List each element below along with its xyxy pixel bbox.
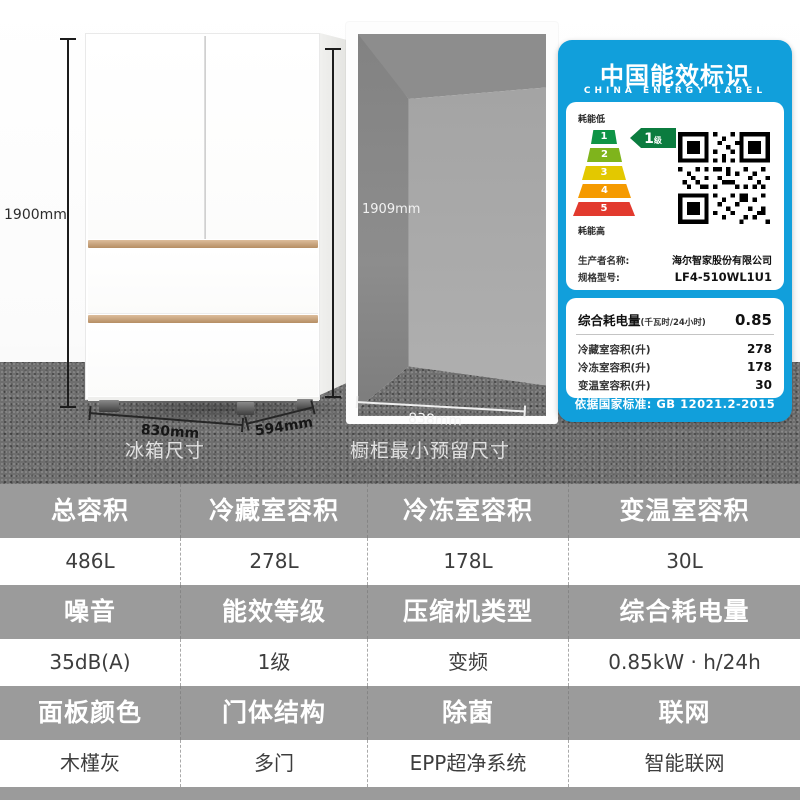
producer-row: 生产者名称: 海尔智家股份有限公司 (578, 252, 772, 267)
energy-tier-1: 1 (591, 130, 617, 144)
spec-value: 278L (181, 538, 368, 585)
spec-value: 0.85kW · h/24h (569, 639, 800, 686)
row-value: 278 (747, 342, 772, 356)
producer-value: 海尔智家股份有限公司 (672, 252, 772, 267)
spec-header: 冷冻室容积 (368, 484, 569, 538)
spec-header-row: 面板颜色 门体结构 除菌 联网 (0, 686, 800, 740)
model-row: 规格型号: LF4-510WL1U1 (578, 270, 772, 284)
spec-value: EPP超净系统 (368, 740, 569, 787)
product-scene: 1900mm 830mm 594mm 冰箱尺寸 1909mm 838mm 橱柜最… (0, 0, 800, 484)
fridge-middle-drawer (88, 249, 318, 314)
variable-temp-volume-row: 变温室容积(升) 30 (578, 378, 772, 393)
consumption-label: 综合耗电量(千瓦时/24小时) (578, 310, 706, 329)
spec-value-row: 486L 278L 178L 30L (0, 538, 800, 585)
grade-number: 1 (644, 131, 654, 147)
consumption-value: 0.85 (735, 311, 772, 329)
row-value: 178 (747, 360, 772, 374)
fridge-height-value: 1900mm (4, 207, 62, 223)
energy-grade-badge: 1级 (630, 128, 676, 148)
cabinet-niche-interior (358, 34, 546, 416)
fridge-handle-trim-bottom (88, 315, 318, 323)
grade-unit: 级 (654, 136, 662, 145)
producer-label: 生产者名称: (578, 253, 629, 267)
spec-value: 木槿灰 (0, 740, 181, 787)
spec-value: 1级 (181, 639, 368, 686)
spec-value: 变频 (368, 639, 569, 686)
spec-header: 变温室容积 (569, 484, 800, 538)
spec-header-row: 噪音 能效等级 压缩机类型 综合耗电量 (0, 585, 800, 639)
fridge-base-strip (88, 397, 319, 401)
product-spec-page: 1900mm 830mm 594mm 冰箱尺寸 1909mm 838mm 橱柜最… (0, 0, 800, 800)
cabinet-dimensions-caption: 橱柜最小预留尺寸 (315, 436, 545, 463)
model-label: 规格型号: (578, 270, 620, 284)
spec-table: 总容积 冷藏室容积 冷冻室容积 变温室容积 486L 278L 178L 30L… (0, 484, 800, 800)
energy-tier-5: 5 (573, 202, 635, 216)
spec-value: 486L (0, 538, 181, 585)
fridge-bottom-drawer (88, 324, 318, 396)
fridge-height-dimension-line (67, 38, 69, 408)
spec-header: 冷藏室容积 (181, 484, 368, 538)
fridge-side-panel (320, 33, 348, 395)
energy-tier-4: 4 (578, 184, 631, 198)
refrigerator-illustration (85, 33, 348, 414)
fridge-handle-trim-top (88, 240, 318, 248)
model-value: LF4-510WL1U1 (675, 270, 772, 284)
low-energy-text: 耗能低 (578, 112, 605, 125)
spec-value: 多门 (181, 740, 368, 787)
spec-value-row: 木槿灰 多门 EPP超净系统 智能联网 (0, 740, 800, 787)
energy-tier-2: 2 (587, 148, 622, 162)
energy-label-standard: 依据国家标准: GB 12021.2-2015 (558, 396, 792, 412)
cabinet-niche-illustration (346, 22, 558, 424)
spec-header: 面板颜色 (0, 686, 181, 740)
fridge-front-panel (85, 33, 320, 400)
consumption-row: 综合耗电量(千瓦时/24小时) 0.85 (578, 310, 772, 329)
spec-value: 35dB(A) (0, 639, 181, 686)
china-energy-label: 中国能效标识 CHINA ENERGY LABEL 耗能低 1 2 3 4 5 … (558, 40, 792, 422)
spec-header: 总容积 (0, 484, 181, 538)
cabinet-height-dimension-line (332, 48, 334, 398)
spec-header: 噪音 (0, 585, 181, 639)
row-value: 30 (755, 378, 772, 392)
spec-table-footer-strip (0, 787, 800, 800)
spec-value-row: 35dB(A) 1级 变频 0.85kW · h/24h (0, 639, 800, 686)
spec-header-row: 总容积 冷藏室容积 冷冻室容积 变温室容积 (0, 484, 800, 538)
energy-tier-3: 3 (582, 166, 626, 180)
spec-header: 门体结构 (181, 686, 368, 740)
panel-divider (576, 334, 774, 335)
row-label: 冷冻室容积(升) (578, 360, 651, 375)
fridge-foot (237, 402, 254, 415)
spec-header: 联网 (569, 686, 800, 740)
spec-header: 除菌 (368, 686, 569, 740)
spec-value: 30L (569, 538, 800, 585)
high-energy-text: 耗能高 (578, 224, 605, 237)
freezer-volume-row: 冷冻室容积(升) 178 (578, 360, 772, 375)
row-label: 冷藏室容积(升) (578, 342, 651, 357)
fridge-volume-row: 冷藏室容积(升) 278 (578, 342, 772, 357)
fridge-foot (99, 400, 119, 412)
qr-code-icon (678, 132, 770, 224)
spec-value: 智能联网 (569, 740, 800, 787)
cabinet-height-value: 1909mm (362, 202, 420, 217)
row-label: 变温室容积(升) (578, 378, 651, 393)
energy-consumption-panel: 综合耗电量(千瓦时/24小时) 0.85 冷藏室容积(升) 278 冷冻室容积(… (566, 298, 784, 398)
energy-grade-panel: 耗能低 1 2 3 4 5 1级 耗能高 生产者名称: 海尔智家股份有限公司 (566, 102, 784, 290)
spec-value: 178L (368, 538, 569, 585)
fridge-door-split-line (204, 36, 206, 239)
consumption-title: 综合耗电量 (578, 313, 641, 328)
energy-label-subtitle: CHINA ENERGY LABEL (558, 86, 792, 96)
spec-header: 能效等级 (181, 585, 368, 639)
fridge-french-doors (88, 36, 317, 239)
spec-header: 压缩机类型 (368, 585, 569, 639)
spec-header: 综合耗电量 (569, 585, 800, 639)
fridge-dimensions-caption: 冰箱尺寸 (85, 436, 245, 463)
consumption-unit: (千瓦时/24小时) (641, 318, 706, 328)
